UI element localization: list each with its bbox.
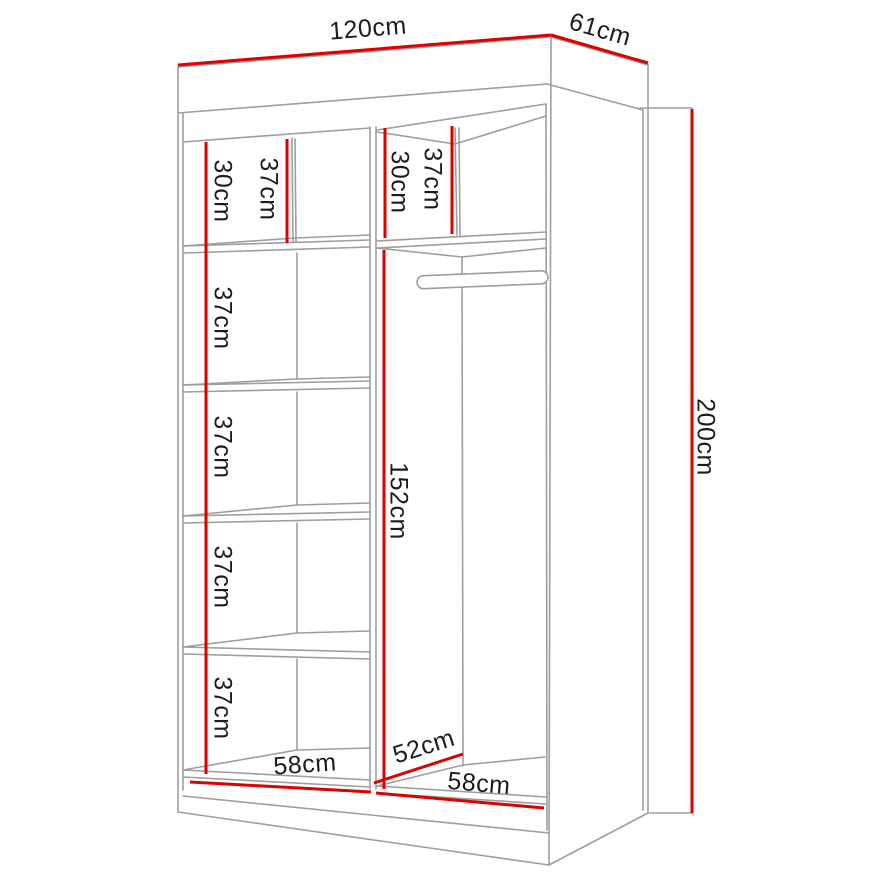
dim-label-shelf-spacing-2: 37cm [210,415,235,478]
dim-label-shelf-spacing-4: 37cm [210,676,235,739]
hanging-rail [417,271,548,289]
dim-line-left-width [190,782,371,792]
dim-label-overall-width: 120cm [328,13,407,44]
dim-label-right-top-front: 37cm [420,147,445,210]
dim-label-shelf-spacing-1: 37cm [210,286,235,349]
wardrobe-dimension-diagram: 120cm 61cm 200cm 30cm 37cm 30cm 37cm 37c… [0,0,880,880]
dim-label-right-top-back: 30cm [387,150,412,213]
dim-label-left-top-back: 30cm [210,159,235,222]
dim-label-right-width: 58cm [446,769,511,799]
dim-label-hanging-height: 152cm [386,462,411,540]
dim-label-shelf-spacing-3: 37cm [210,545,235,608]
dim-label-left-top-front: 37cm [256,157,281,220]
interior-structure [183,104,546,789]
dim-label-left-width: 58cm [273,750,338,779]
dim-label-overall-height: 200cm [693,398,718,476]
